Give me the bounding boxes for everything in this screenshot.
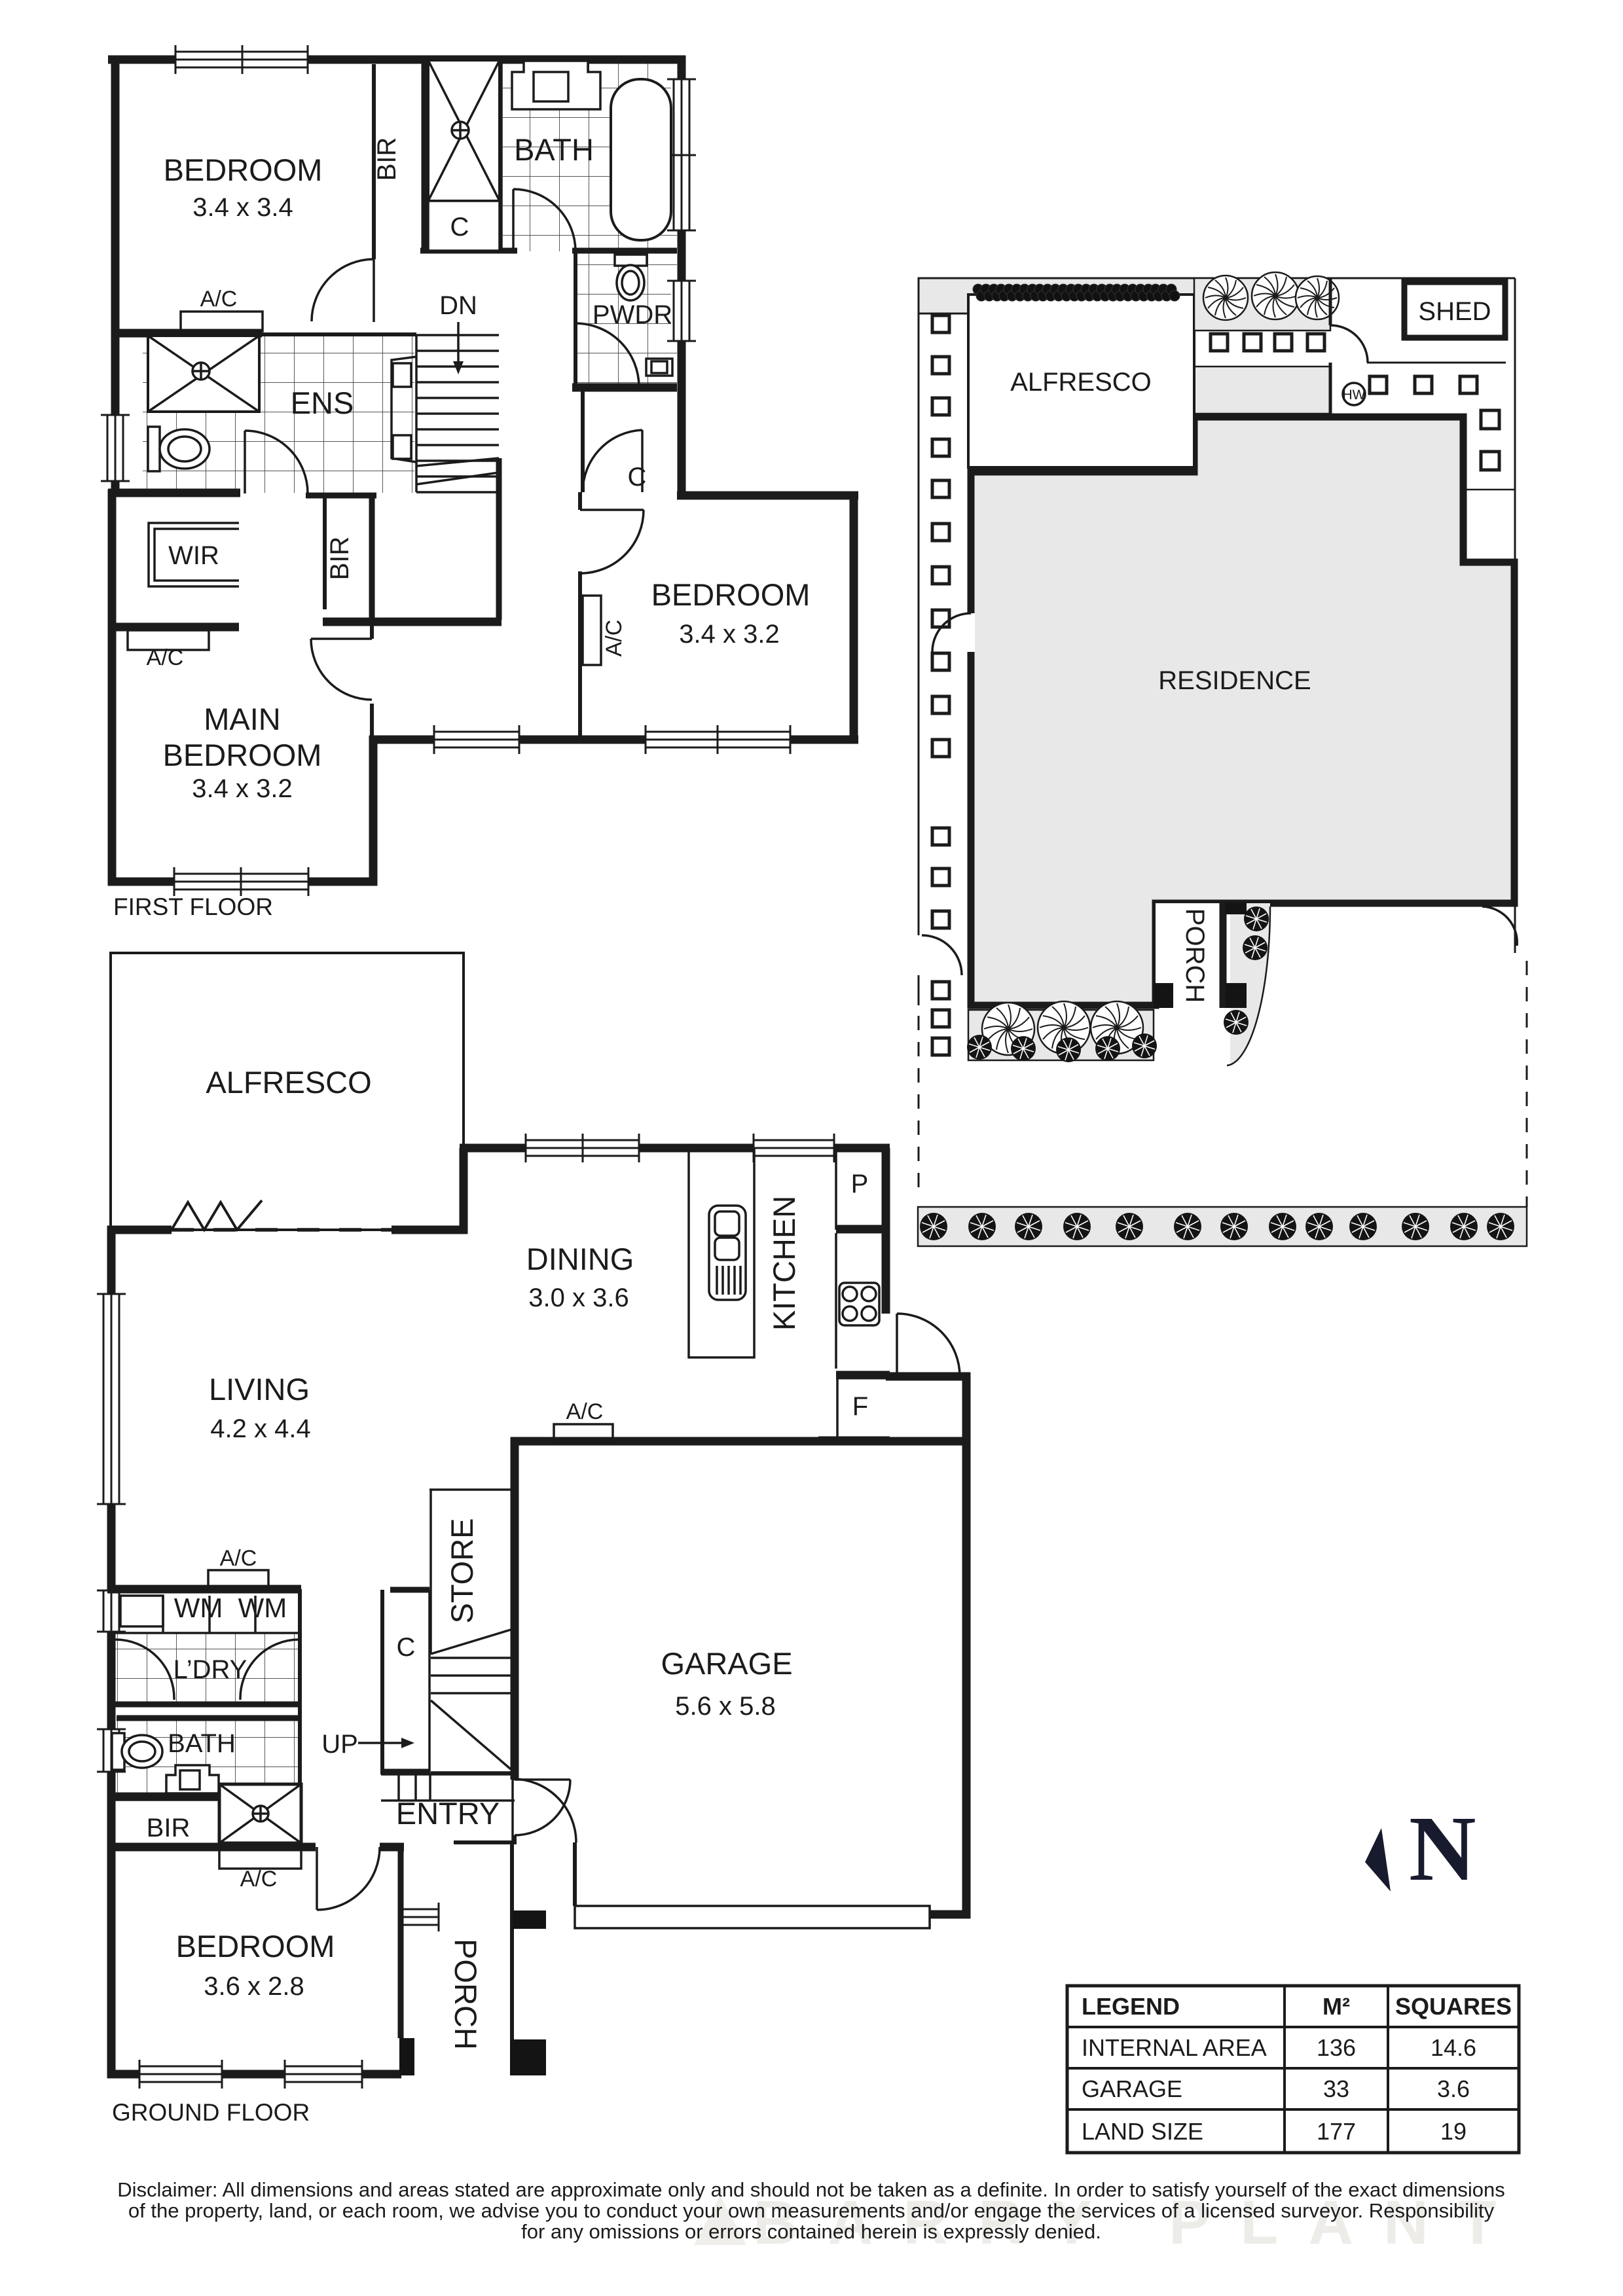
svg-text:RESIDENCE: RESIDENCE <box>1158 666 1311 695</box>
svg-text:C: C <box>628 463 647 492</box>
svg-text:ALFRESCO: ALFRESCO <box>206 1065 371 1100</box>
svg-text:BIR: BIR <box>147 1814 191 1842</box>
svg-text:A/C: A/C <box>200 287 238 312</box>
svg-text:3.4 x 3.2: 3.4 x 3.2 <box>192 774 292 803</box>
svg-text:BATH: BATH <box>514 132 594 167</box>
svg-text:P: P <box>851 1170 869 1198</box>
svg-text:GARAGE: GARAGE <box>1082 2075 1182 2102</box>
svg-text:HW: HW <box>1343 387 1366 403</box>
svg-text:4.2 x 4.4: 4.2 x 4.4 <box>210 1414 310 1443</box>
svg-text:LAND SIZE: LAND SIZE <box>1082 2118 1203 2145</box>
svg-text:3.4 x 3.4: 3.4 x 3.4 <box>192 193 293 222</box>
svg-text:A/C: A/C <box>602 620 627 657</box>
svg-text:FIRST FLOOR: FIRST FLOOR <box>113 893 273 920</box>
svg-text:3.6 x 2.8: 3.6 x 2.8 <box>204 1972 304 2001</box>
svg-text:DN: DN <box>439 291 477 320</box>
svg-text:LEGEND: LEGEND <box>1082 1993 1180 2020</box>
svg-text:BEDROOM: BEDROOM <box>651 577 811 612</box>
svg-text:BEDROOM: BEDROOM <box>176 1929 335 1964</box>
svg-text:19: 19 <box>1440 2118 1467 2145</box>
svg-text:BIR: BIR <box>373 137 401 181</box>
svg-text:3.0 x 3.6: 3.0 x 3.6 <box>528 1283 629 1312</box>
svg-text:14.6: 14.6 <box>1431 2034 1476 2061</box>
svg-text:M²: M² <box>1322 1993 1350 2020</box>
svg-text:C: C <box>450 213 469 242</box>
svg-text:SHED: SHED <box>1418 297 1491 326</box>
svg-text:BATH: BATH <box>168 1729 236 1758</box>
svg-text:INTERNAL AREA: INTERNAL AREA <box>1082 2034 1267 2061</box>
svg-text:UP: UP <box>321 1730 358 1759</box>
svg-text:ENTRY: ENTRY <box>396 1796 500 1831</box>
svg-text:5.6 x 5.8: 5.6 x 5.8 <box>675 1692 775 1721</box>
svg-text:GARAGE: GARAGE <box>661 1646 792 1681</box>
svg-text:MAIN: MAIN <box>204 702 281 736</box>
svg-text:LIVING: LIVING <box>209 1372 310 1407</box>
svg-text:ENS: ENS <box>291 386 354 420</box>
svg-text:A/C: A/C <box>220 1546 257 1571</box>
svg-text:Disclaimer: All dimensions and: Disclaimer: All dimensions and areas sta… <box>117 2178 1505 2201</box>
svg-text:BEDROOM: BEDROOM <box>163 738 322 772</box>
svg-text:for any omissions or errors co: for any omissions or errors contained he… <box>521 2220 1101 2243</box>
svg-text:GROUND FLOOR: GROUND FLOOR <box>112 2099 310 2126</box>
svg-text:177: 177 <box>1317 2118 1356 2145</box>
svg-text:A/C: A/C <box>147 645 184 670</box>
svg-text:136: 136 <box>1317 2034 1356 2061</box>
svg-text:C: C <box>397 1633 416 1662</box>
svg-text:ALFRESCO: ALFRESCO <box>1010 368 1152 397</box>
svg-text:F: F <box>852 1392 868 1421</box>
svg-text:KITCHEN: KITCHEN <box>767 1196 801 1331</box>
svg-text:PORCH: PORCH <box>1180 908 1209 1003</box>
svg-text:PORCH: PORCH <box>448 1939 483 2050</box>
svg-text:SQUARES: SQUARES <box>1395 1993 1512 2020</box>
svg-text:STORE: STORE <box>445 1518 479 1623</box>
svg-text:A/C: A/C <box>566 1399 604 1424</box>
svg-text:L’DRY: L’DRY <box>173 1655 247 1684</box>
svg-text:BIR: BIR <box>325 537 354 581</box>
svg-text:PWDR: PWDR <box>593 300 672 329</box>
svg-text:WIR: WIR <box>168 541 219 570</box>
svg-text:DINING: DINING <box>526 1242 634 1276</box>
svg-text:BEDROOM: BEDROOM <box>164 152 323 187</box>
svg-text:WM WM: WM WM <box>174 1592 287 1623</box>
svg-text:3.4 x 3.2: 3.4 x 3.2 <box>679 620 779 649</box>
svg-text:A/C: A/C <box>240 1867 278 1892</box>
svg-text:of the property, land, or each: of the property, land, or each room, we … <box>128 2199 1495 2222</box>
svg-text:33: 33 <box>1323 2075 1349 2102</box>
svg-text:3.6: 3.6 <box>1437 2075 1470 2102</box>
svg-text:N: N <box>1409 1797 1476 1900</box>
